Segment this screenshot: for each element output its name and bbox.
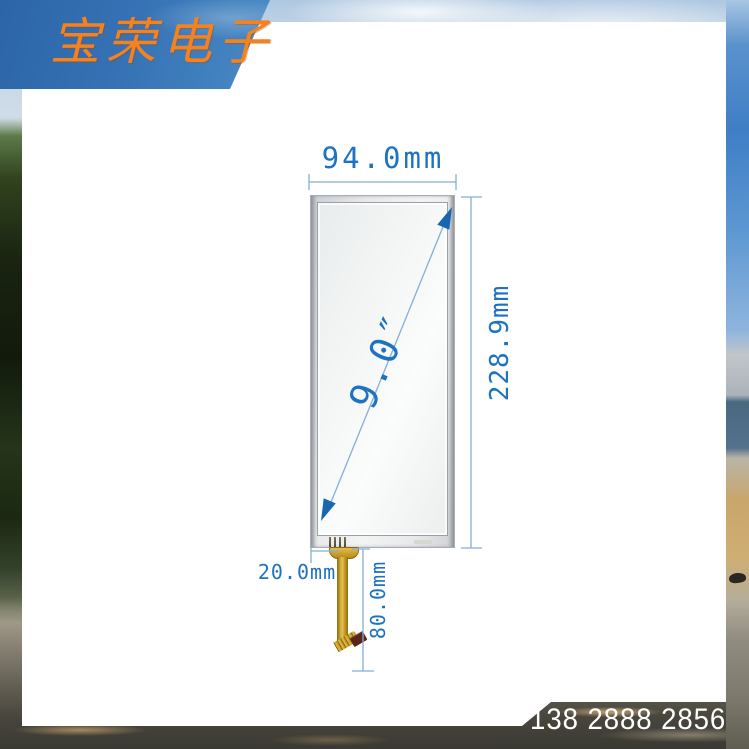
product-image: 94.0mm 228.9mm 9.0″ 20.0mm 80.0mm 宝荣电子 1… xyxy=(0,0,749,749)
fpc-cable xyxy=(337,557,348,646)
bezel-marking xyxy=(414,540,432,544)
fpc-offset-label: 20.0mm xyxy=(258,560,336,584)
height-dimension-label: 228.9mm xyxy=(485,285,515,402)
connector-finger xyxy=(339,537,341,547)
building-right-edge xyxy=(726,0,749,749)
connector-finger xyxy=(329,537,331,547)
company-name: 宝荣电子 xyxy=(50,12,274,72)
trees-left-edge xyxy=(0,118,23,623)
connector-finger xyxy=(334,537,336,547)
width-dimension-label: 94.0mm xyxy=(322,141,445,175)
phone-number: 138 2888 2856 xyxy=(530,703,726,737)
fpc-length-label: 80.0mm xyxy=(366,561,390,639)
connector-finger xyxy=(344,537,346,547)
